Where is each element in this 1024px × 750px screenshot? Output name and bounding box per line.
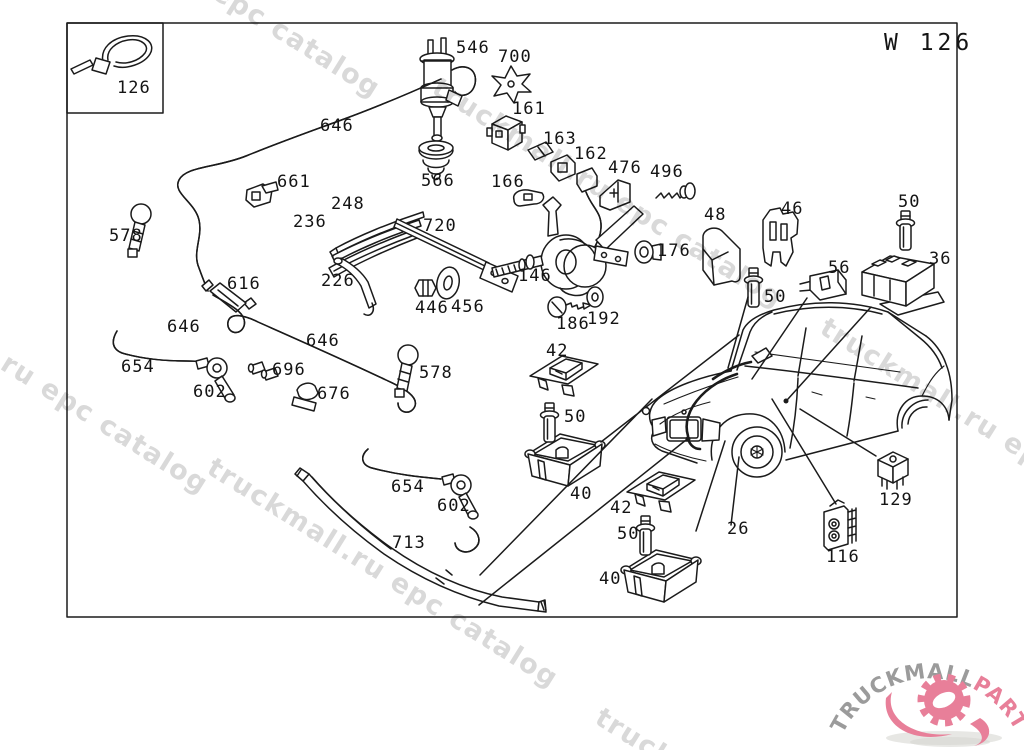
part-label-676: 676 [317,386,351,403]
part-label-696: 696 [272,362,306,379]
part-label-713: 713 [392,535,426,552]
part-label-616: 616 [227,276,261,293]
part-label-26: 26 [727,521,749,538]
part-label-654: 654 [121,359,155,376]
part-label-42: 42 [610,500,632,517]
part-label-176: 176 [657,243,691,260]
part-label-146: 146 [518,268,552,285]
brand-logo: TRUCKMALLPARTS [828,634,1024,750]
part-label-162: 162 [574,146,608,163]
part-label-129: 129 [879,492,913,509]
part-label-646: 646 [306,333,340,350]
part-label-248: 248 [331,196,365,213]
part-label-126: 126 [117,80,151,97]
part-label-46: 46 [781,201,803,218]
part-label-40: 40 [599,571,621,588]
part-label-56: 56 [828,260,850,277]
part-label-42: 42 [546,343,568,360]
part-label-720: 720 [423,218,457,235]
part-label-236: 236 [293,214,327,231]
part-label-654: 654 [391,479,425,496]
model-code: W 126 [884,30,973,56]
part-label-166: 166 [491,174,525,191]
part-label-50: 50 [764,289,786,306]
part-label-48: 48 [704,207,726,224]
part-label-602: 602 [437,498,471,515]
part-label-116: 116 [826,549,860,566]
part-label-646: 646 [320,118,354,135]
part-label-456: 456 [451,299,485,316]
part-label-566: 566 [421,173,455,190]
part-label-50: 50 [898,194,920,211]
part-label-578: 578 [419,365,453,382]
part-label-700: 700 [498,49,532,66]
diagram-canvas: truckmall.ru epc catalog truckmall.ru ep… [0,0,1024,750]
part-label-186: 186 [556,316,590,333]
part-label-50: 50 [617,526,639,543]
part-label-446: 446 [415,300,449,317]
part-label-546: 546 [456,40,490,57]
part-label-40: 40 [570,486,592,503]
part-label-192: 192 [587,311,621,328]
part-label-161: 161 [512,101,546,118]
part-label-36: 36 [929,251,951,268]
part-label-476: 476 [608,160,642,177]
part-label-661: 661 [277,174,311,191]
part-label-163: 163 [543,131,577,148]
part-label-646: 646 [167,319,201,336]
part-label-578: 578 [109,228,143,245]
part-label-226: 226 [321,273,355,290]
part-label-602: 602 [193,384,227,401]
part-label-496: 496 [650,164,684,181]
part-label-50: 50 [564,409,586,426]
